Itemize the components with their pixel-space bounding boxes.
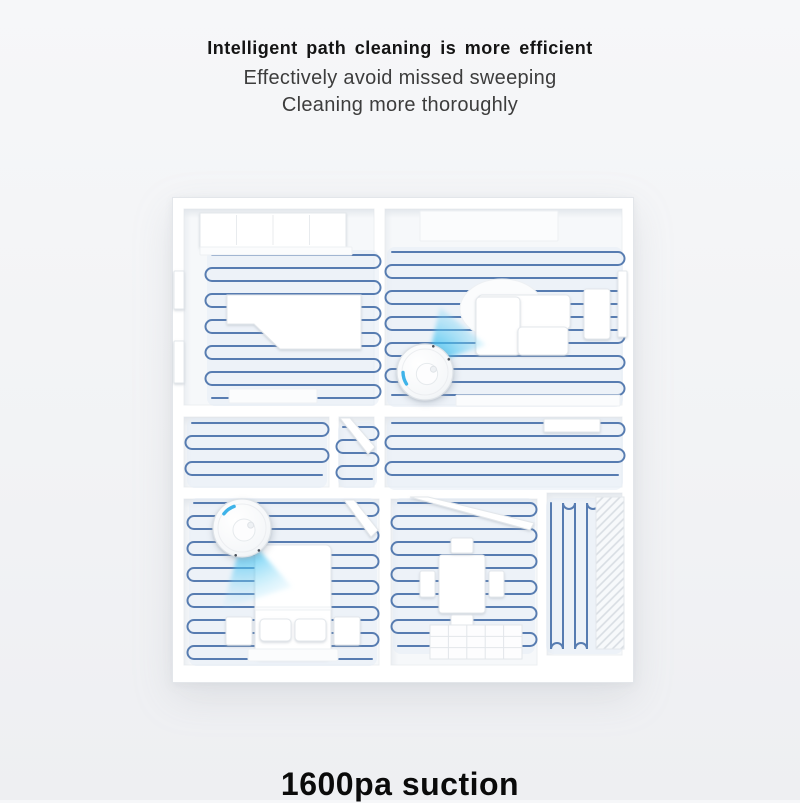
nightstand-left (226, 617, 252, 645)
hall-cabinet (544, 419, 600, 432)
subtitle-line-2: Cleaning more thoroughly (0, 94, 800, 117)
sofa-chaise (476, 297, 520, 355)
foot-mat (248, 649, 338, 661)
pillow-left (260, 619, 291, 641)
sofa-seat (518, 327, 568, 355)
subtitle-line-1: Effectively avoid missed sweeping (0, 67, 800, 90)
chair-right (489, 571, 504, 597)
window-left-2 (174, 341, 184, 383)
floorplan-illustration (172, 197, 634, 683)
drying-rack (596, 497, 624, 649)
nightstand-right (334, 617, 360, 645)
shelf-strip (456, 395, 620, 406)
floor-mat (229, 389, 317, 403)
chair-left (420, 571, 435, 597)
blanket-line (255, 607, 331, 610)
suction-headline: 1600pa suction (0, 766, 800, 803)
page-title: Intelligent path cleaning is more effici… (0, 38, 800, 59)
product-banner: Intelligent path cleaning is more effici… (0, 0, 800, 800)
window-right (618, 271, 627, 337)
window-left-1 (174, 271, 184, 309)
tv-stand (584, 289, 610, 339)
pillow-right (295, 619, 326, 641)
wardrobe (200, 213, 346, 247)
wardrobe-shelf (200, 247, 352, 255)
kitchen-tiles (430, 625, 522, 659)
chair-top (451, 538, 473, 553)
cabinet-top (420, 211, 558, 241)
dining-table (439, 555, 485, 613)
